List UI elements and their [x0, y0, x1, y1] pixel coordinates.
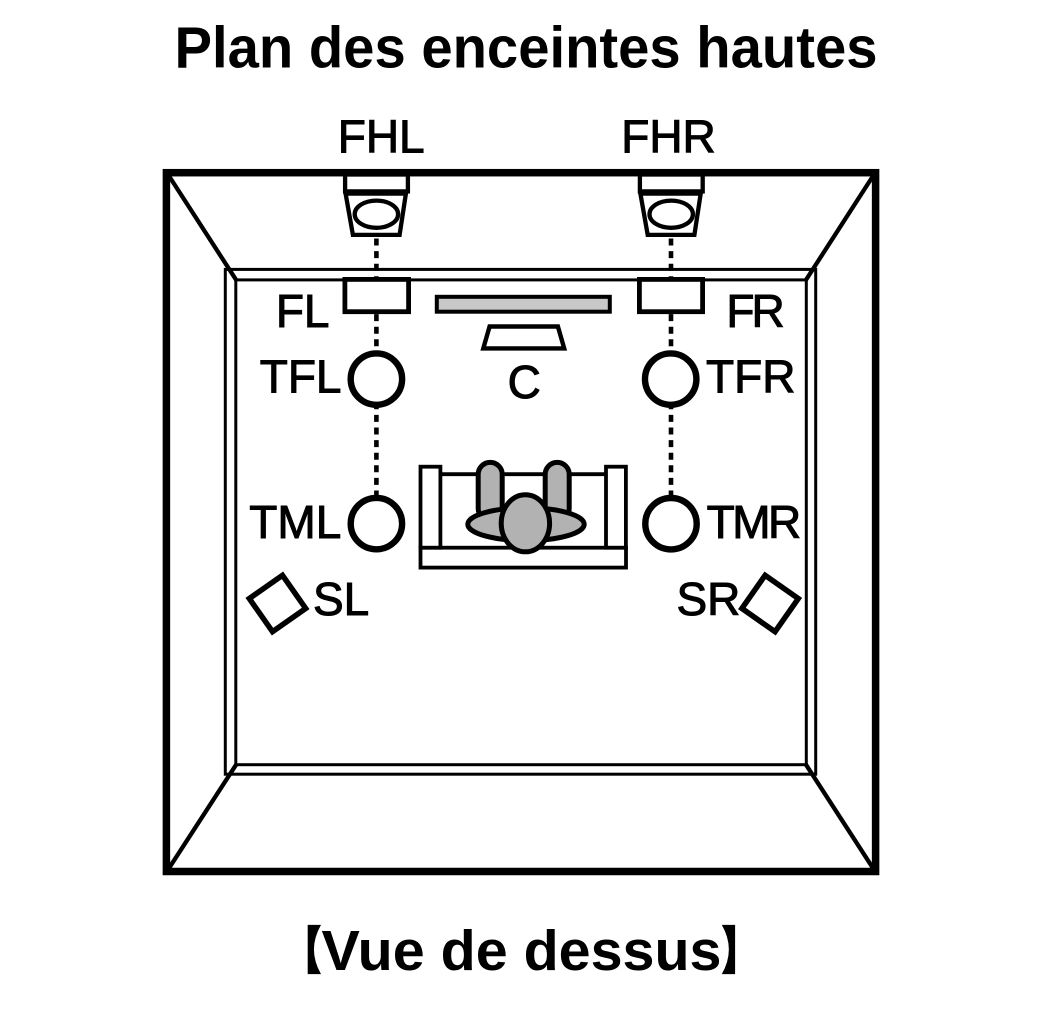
svg-text:Plan des enceintes hautes: Plan des enceintes hautes [175, 16, 878, 81]
svg-text:TMR: TMR [707, 496, 800, 548]
svg-text:Vue de dessus: Vue de dessus [322, 919, 722, 983]
svg-text:SR: SR [677, 573, 741, 625]
svg-text:TFR: TFR [706, 350, 795, 402]
svg-text:TML: TML [249, 496, 341, 548]
svg-text:FL: FL [276, 285, 330, 337]
svg-text:SL: SL [313, 573, 369, 625]
svg-text:C: C [508, 356, 541, 408]
svg-text:FR: FR [726, 285, 783, 337]
svg-text:FHL: FHL [338, 111, 425, 163]
svg-text:FHR: FHR [621, 111, 716, 163]
svg-text:TFL: TFL [260, 350, 342, 402]
